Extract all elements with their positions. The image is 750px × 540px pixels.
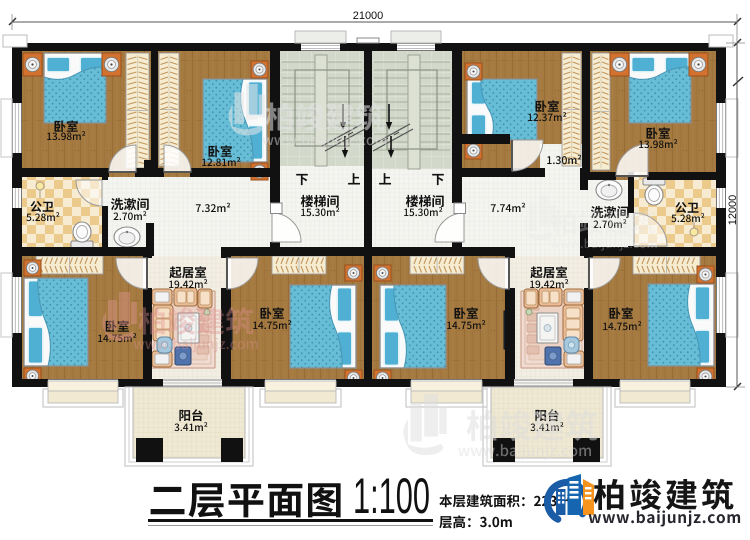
svg-text:12000: 12000 — [727, 195, 739, 226]
svg-text:21000: 21000 — [353, 10, 384, 22]
svg-text:1:100: 1:100 — [353, 468, 430, 524]
